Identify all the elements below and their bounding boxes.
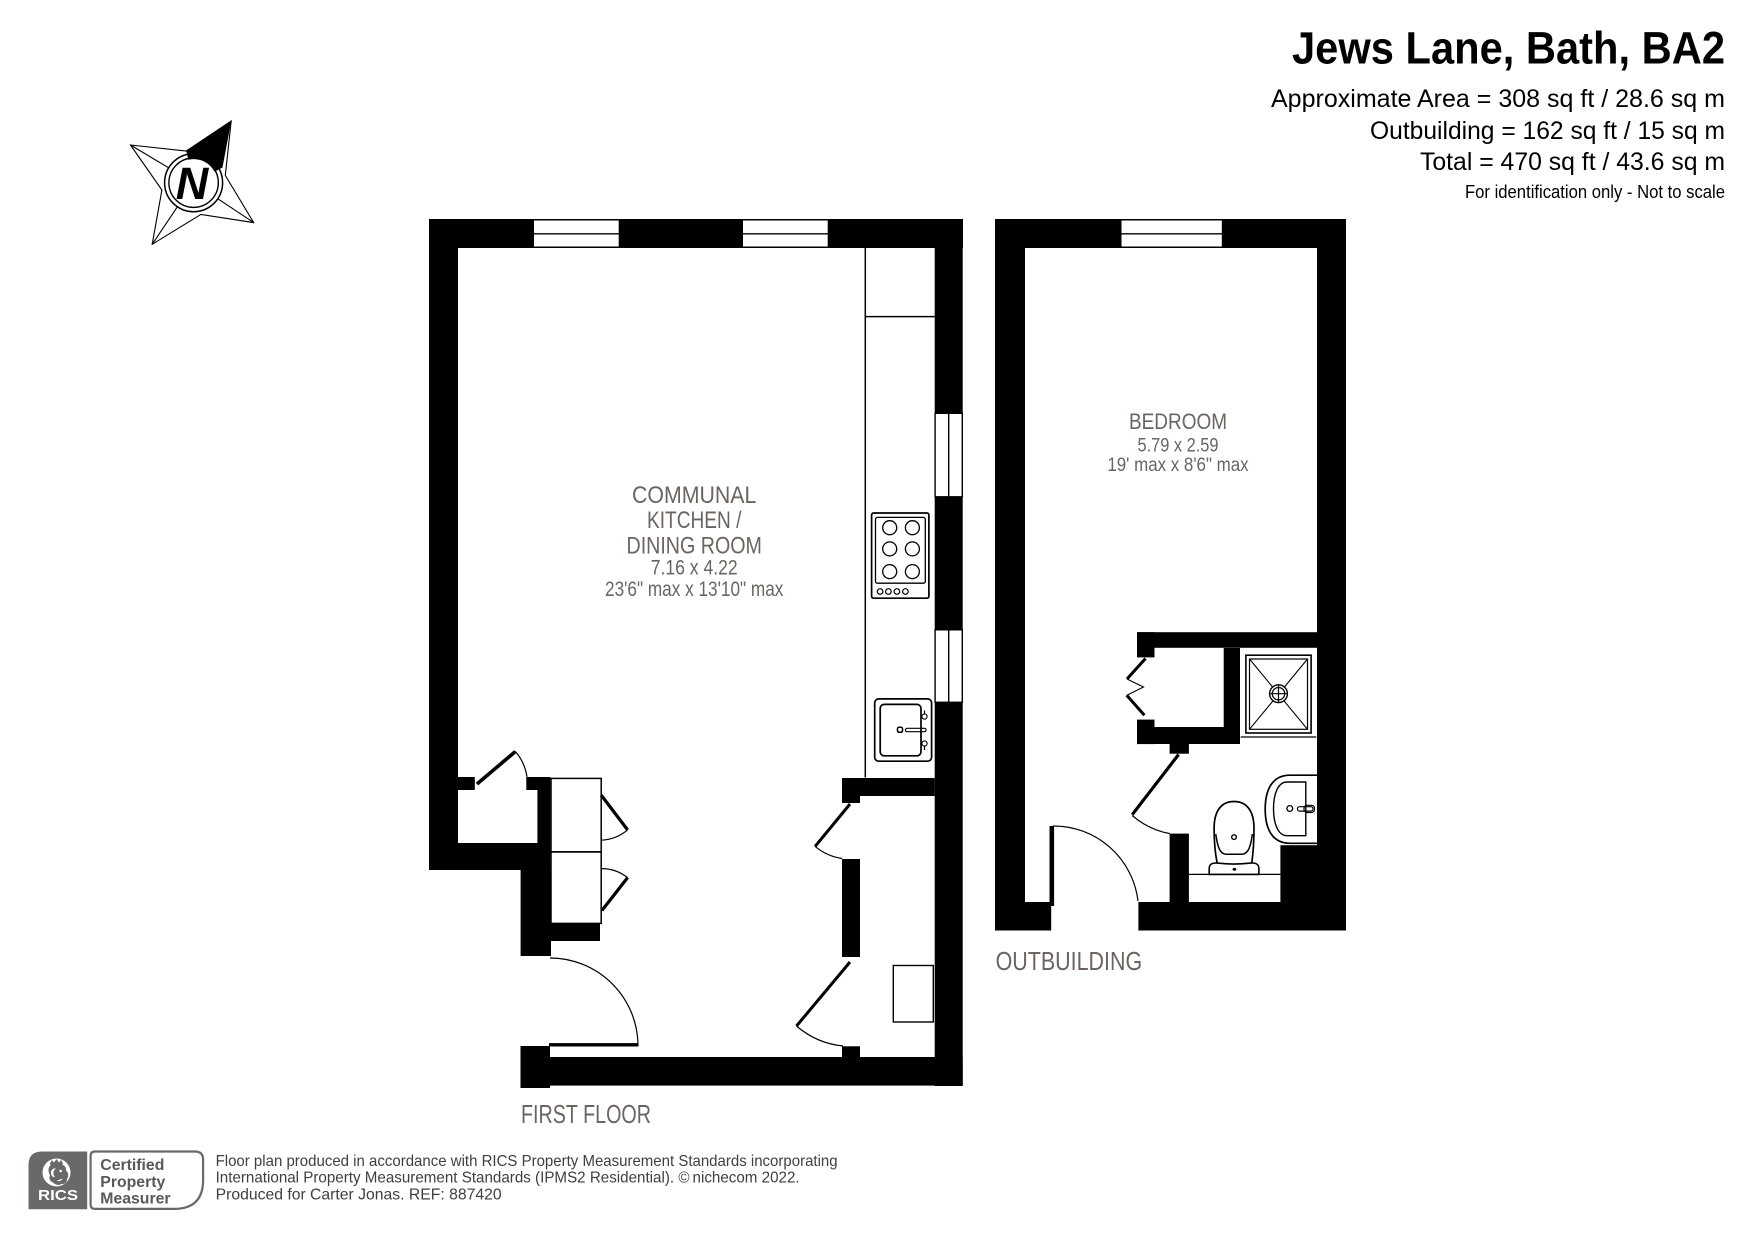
svg-text:7.16 x 4.22: 7.16 x 4.22 <box>651 557 738 580</box>
svg-text:OUTBUILDING: OUTBUILDING <box>996 948 1143 976</box>
svg-text:Outbuilding = 162 sq ft / 15 s: Outbuilding = 162 sq ft / 15 sq m <box>1370 118 1725 145</box>
svg-text:Measurer: Measurer <box>100 1191 170 1208</box>
svg-text:Approximate Area = 308 sq ft /: Approximate Area = 308 sq ft / 28.6 sq m <box>1271 86 1725 113</box>
svg-text:5.79 x 2.59: 5.79 x 2.59 <box>1138 435 1219 456</box>
svg-text:Produced for Carter Jonas. R: Produced for Carter Jonas. REF: 887420 <box>216 1186 502 1203</box>
svg-text:For identification only - Not: For identification only - Not to scale <box>1465 181 1725 202</box>
svg-text:KITCHEN /: KITCHEN / <box>647 507 742 534</box>
svg-text:Certified: Certified <box>100 1157 164 1174</box>
svg-text:BEDROOM: BEDROOM <box>1129 409 1227 434</box>
svg-text:Floor plan produced in accorda: Floor plan produced in accordance with R… <box>216 1153 838 1170</box>
svg-text:Jews Lane, Bath, BA2: Jews Lane, Bath, BA2 <box>1292 22 1725 73</box>
svg-text:RICS: RICS <box>38 1188 78 1204</box>
svg-text:Total = 470 sq ft / 43.6 sq m: Total = 470 sq ft / 43.6 sq m <box>1420 149 1725 176</box>
svg-text:COMMUNAL: COMMUNAL <box>632 482 756 509</box>
svg-text:23'6" max x 13'10" max: 23'6" max x 13'10" max <box>605 578 784 601</box>
svg-text:Property: Property <box>100 1174 165 1191</box>
svg-text:FIRST FLOOR: FIRST FLOOR <box>521 1101 651 1129</box>
svg-text:19' max x 8'6" max: 19' max x 8'6" max <box>1107 455 1249 476</box>
svg-text:International Property Measure: International Property Measurement Stand… <box>216 1170 800 1187</box>
svg-text:N: N <box>176 158 210 209</box>
